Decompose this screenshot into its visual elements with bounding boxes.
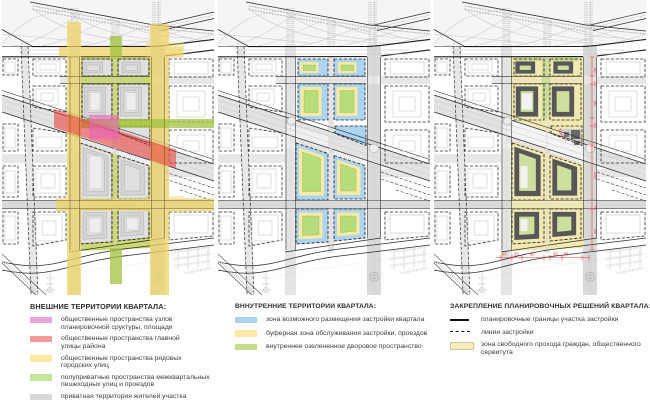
svg-text:А: А xyxy=(559,127,562,132)
svg-text:25: 25 xyxy=(553,252,558,257)
svg-text:60: 60 xyxy=(593,68,598,73)
svg-text:60: 60 xyxy=(502,252,507,257)
svg-text:25: 25 xyxy=(514,252,519,257)
svg-text:260: 260 xyxy=(593,172,598,180)
svg-text:80: 80 xyxy=(530,252,535,257)
svg-text:20: 20 xyxy=(593,123,598,128)
svg-text:80: 80 xyxy=(593,101,598,106)
svg-text:75: 75 xyxy=(593,205,598,210)
svg-text:25: 25 xyxy=(593,81,598,86)
svg-text:85: 85 xyxy=(564,252,569,257)
svg-text:65: 65 xyxy=(593,229,598,234)
